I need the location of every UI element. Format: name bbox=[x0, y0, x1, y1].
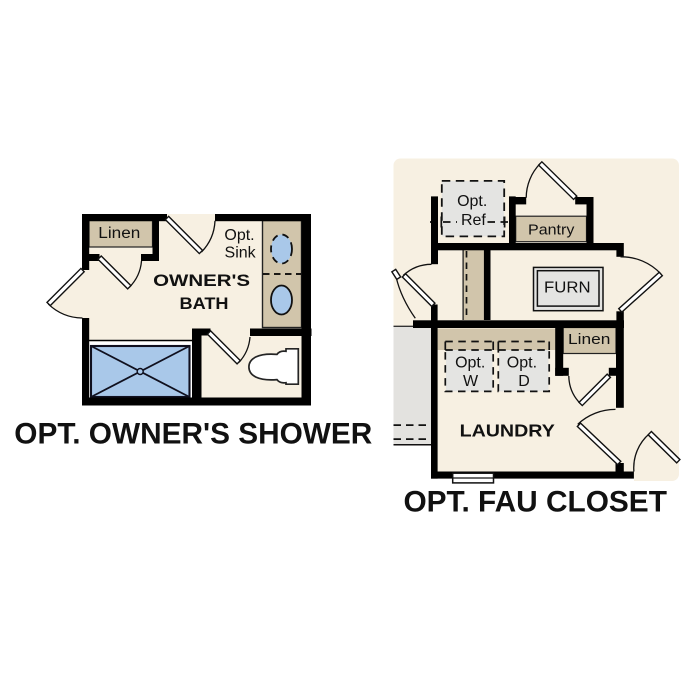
svg-text:LAUNDRY: LAUNDRY bbox=[460, 421, 556, 441]
svg-text:Opt.: Opt. bbox=[224, 227, 254, 244]
svg-text:Linen: Linen bbox=[568, 331, 610, 348]
svg-text:Sink: Sink bbox=[225, 245, 257, 262]
svg-text:OPT. FAU CLOSET: OPT. FAU CLOSET bbox=[403, 486, 667, 519]
svg-text:Opt.: Opt. bbox=[507, 354, 537, 371]
svg-text:OPT. OWNER'S SHOWER: OPT. OWNER'S SHOWER bbox=[14, 418, 372, 451]
svg-text:OWNER'S: OWNER'S bbox=[153, 272, 250, 290]
svg-text:Opt.: Opt. bbox=[457, 193, 487, 210]
svg-text:Pantry: Pantry bbox=[528, 222, 575, 239]
svg-text:Linen: Linen bbox=[98, 225, 140, 242]
svg-text:W: W bbox=[463, 373, 479, 390]
svg-text:FURN: FURN bbox=[544, 279, 591, 296]
svg-text:BATH: BATH bbox=[180, 295, 229, 313]
svg-text:Ref: Ref bbox=[461, 212, 486, 229]
svg-text:Opt.: Opt. bbox=[455, 354, 485, 371]
svg-text:D: D bbox=[518, 373, 530, 390]
